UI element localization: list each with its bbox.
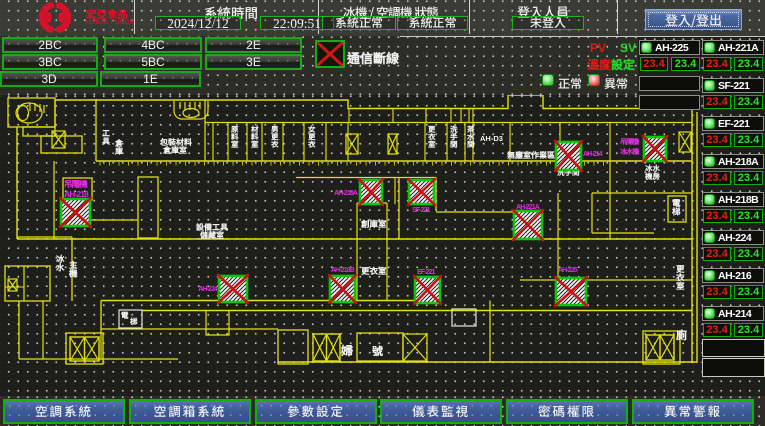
svg-text:EF-221: EF-221 bbox=[417, 269, 436, 276]
svg-text:原料室: 原料室 bbox=[230, 124, 239, 150]
svg-text:AH-218A: AH-218A bbox=[334, 190, 358, 197]
svg-text:更衣室: 更衣室 bbox=[360, 265, 387, 277]
svg-text:主機: 主機 bbox=[68, 259, 78, 280]
svg-text:工具: 工具 bbox=[101, 128, 111, 147]
svg-text:AH-218: AH-218 bbox=[64, 189, 89, 199]
svg-text:更衣室: 更衣室 bbox=[427, 124, 436, 150]
svg-text:梯: 梯 bbox=[129, 316, 138, 327]
svg-text:冰水: 冰水 bbox=[55, 253, 65, 274]
svg-text:洗手間: 洗手間 bbox=[450, 124, 458, 150]
svg-text:電梯: 電梯 bbox=[672, 197, 681, 218]
svg-text:廁: 廁 bbox=[675, 327, 687, 343]
svg-text:婦: 婦 bbox=[340, 342, 353, 359]
svg-text:AH-221A: AH-221A bbox=[516, 204, 540, 211]
svg-text:男更衣: 男更衣 bbox=[270, 124, 279, 150]
svg-text:號: 號 bbox=[372, 343, 383, 359]
svg-text:AH-D3: AH-D3 bbox=[480, 134, 503, 143]
svg-text:AH-225: AH-225 bbox=[558, 267, 578, 274]
svg-text:AH-224: AH-224 bbox=[198, 286, 218, 293]
svg-text:AH-218B: AH-218B bbox=[331, 267, 355, 274]
svg-text:機房: 機房 bbox=[644, 171, 661, 182]
svg-text:電: 電 bbox=[121, 310, 129, 321]
svg-text:冰水機: 冰水機 bbox=[620, 147, 639, 157]
svg-text:無塵室作業區: 無塵室作業區 bbox=[506, 150, 555, 161]
svg-text:倉庫室: 倉庫室 bbox=[162, 145, 187, 156]
svg-text:AH-214: AH-214 bbox=[583, 151, 603, 158]
svg-text:女更衣: 女更衣 bbox=[307, 124, 316, 150]
svg-text:吊隱機: 吊隱機 bbox=[620, 137, 639, 147]
svg-text:更衣室: 更衣室 bbox=[675, 263, 685, 292]
svg-text:倉庫: 倉庫 bbox=[114, 138, 124, 157]
svg-text:材料室: 材料室 bbox=[250, 124, 259, 150]
svg-text:SF-221: SF-221 bbox=[412, 207, 431, 214]
svg-text:儲藏室: 儲藏室 bbox=[199, 230, 224, 241]
svg-text:創庫室: 創庫室 bbox=[360, 218, 387, 230]
svg-text:茶水間: 茶水間 bbox=[466, 124, 475, 150]
